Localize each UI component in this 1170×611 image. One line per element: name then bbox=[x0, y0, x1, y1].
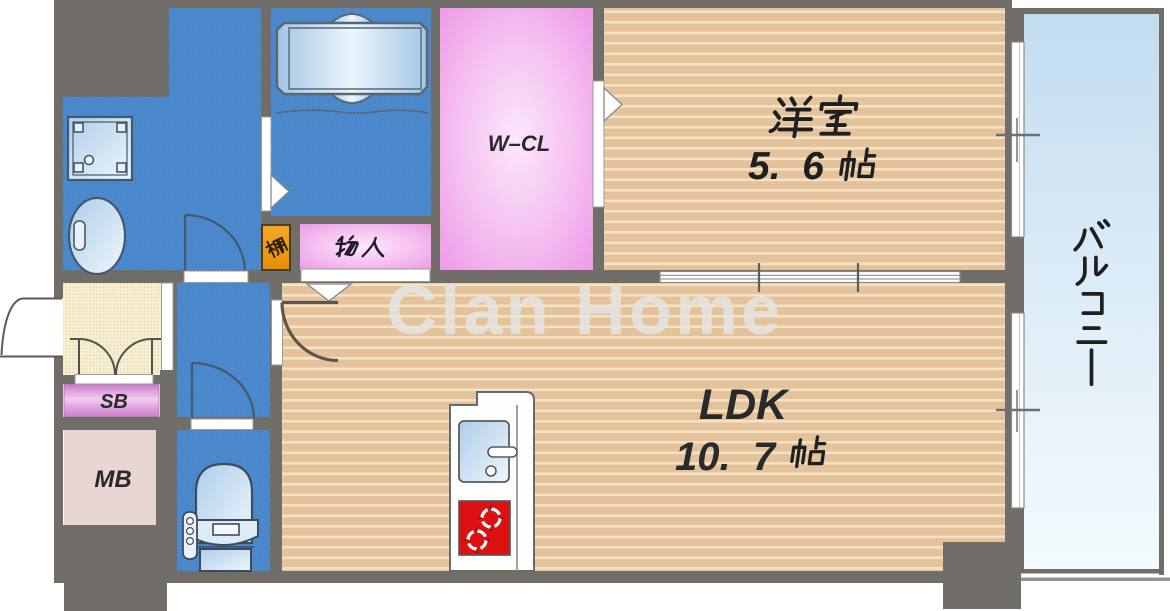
svg-text:W–CL: W–CL bbox=[488, 131, 550, 156]
svg-text:MB: MB bbox=[94, 466, 131, 493]
svg-text:10. 7: 10. 7 bbox=[675, 435, 777, 479]
svg-text:SB: SB bbox=[100, 391, 128, 413]
svg-text:5. 6: 5. 6 bbox=[748, 145, 824, 188]
svg-text:Clan Home: Clan Home bbox=[386, 271, 783, 349]
svg-text:LDK: LDK bbox=[699, 381, 790, 429]
